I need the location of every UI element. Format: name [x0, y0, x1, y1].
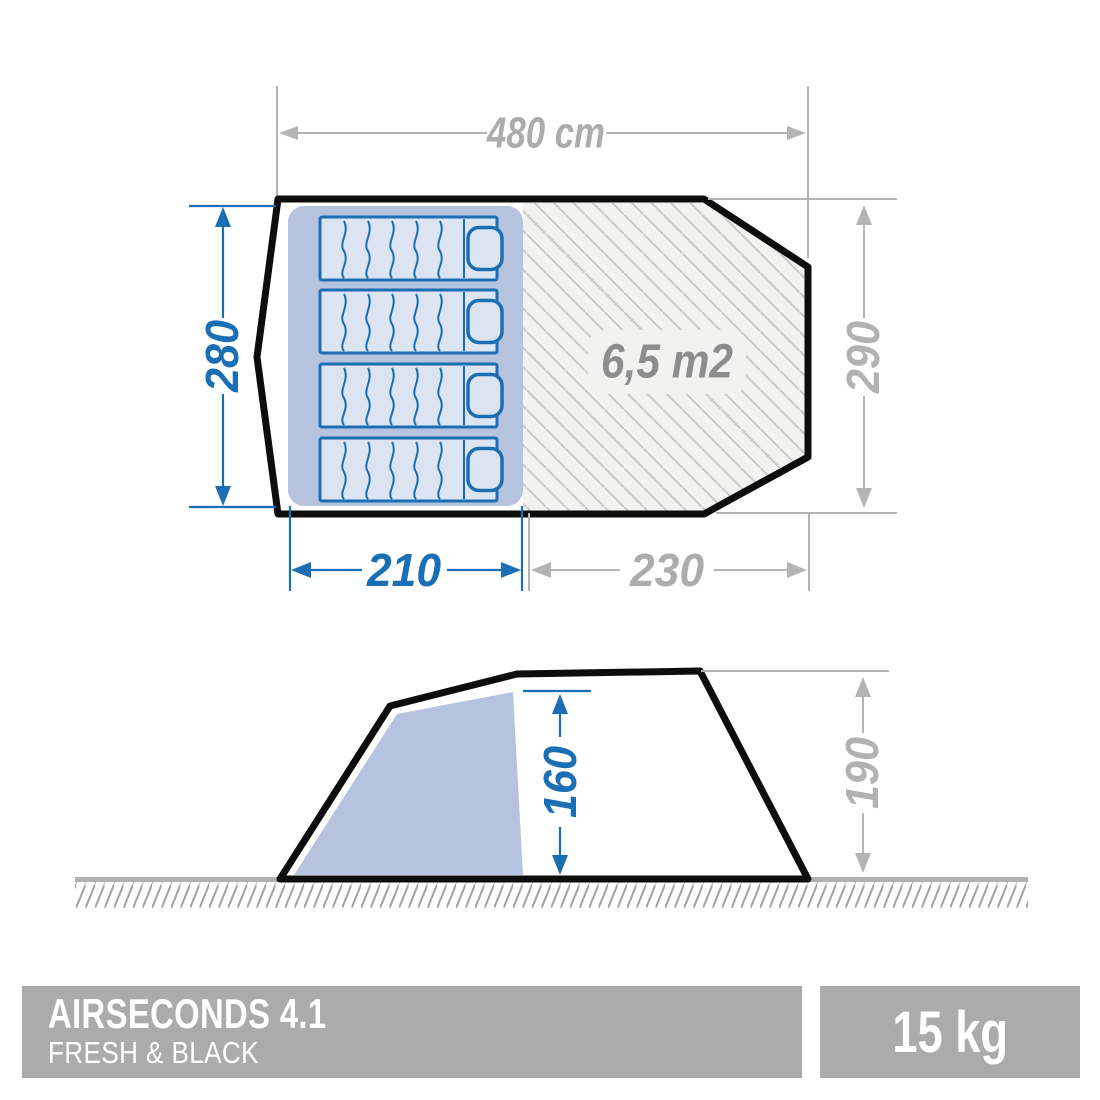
tent-top-view: 480 cm 6,5 m2 280: [189, 86, 897, 596]
dim-total-depth-label: 290: [837, 321, 889, 394]
arrow-right-icon: [501, 562, 521, 578]
arrow-up-icon: [215, 207, 231, 227]
dim-interior-height-label: 160: [534, 746, 586, 818]
sleeping-mat: [320, 364, 502, 427]
arrow-up-icon: [855, 677, 871, 697]
weight-badge: 15 kg: [820, 986, 1080, 1078]
product-banner: AIRSECONDS 4.1 FRESH & BLACK: [22, 986, 802, 1078]
tent-spec-sheet: 480 cm 6,5 m2 280: [0, 0, 1100, 1100]
arrow-left-icon: [279, 126, 298, 140]
arrow-left-icon: [531, 562, 551, 578]
living-area: 6,5 m2: [523, 203, 805, 511]
side-bedroom-area: [294, 692, 523, 875]
product-name: AIRSECONDS 4.1: [48, 993, 636, 1035]
product-line: FRESH & BLACK: [48, 1037, 681, 1068]
dim-bedroom-depth-label: 280: [196, 320, 248, 393]
living-area-label: 6,5 m2: [601, 336, 733, 389]
tent-diagram: 480 cm 6,5 m2 280: [0, 0, 1100, 985]
dim-living-width-label: 230: [629, 544, 704, 596]
weight-value: 15 kg: [892, 999, 1008, 1066]
arrow-up-icon: [856, 205, 872, 225]
dim-bedroom-width-label: 210: [366, 544, 441, 596]
arrow-up-icon: [552, 694, 568, 714]
dim-total-width-label: 480 cm: [486, 109, 605, 158]
arrow-left-icon: [291, 562, 311, 578]
arrow-down-icon: [855, 853, 871, 873]
sleeping-mat: [320, 438, 502, 501]
arrow-down-icon: [215, 486, 231, 506]
dim-exterior-height-label: 190: [836, 737, 888, 809]
arrow-right-icon: [787, 562, 807, 578]
sleeping-mat: [320, 217, 502, 280]
sleeping-mat: [320, 290, 502, 353]
tent-side-view: 160 190: [75, 671, 1028, 908]
arrow-right-icon: [787, 126, 806, 140]
arrow-down-icon: [856, 488, 872, 508]
arrow-down-icon: [552, 855, 568, 875]
